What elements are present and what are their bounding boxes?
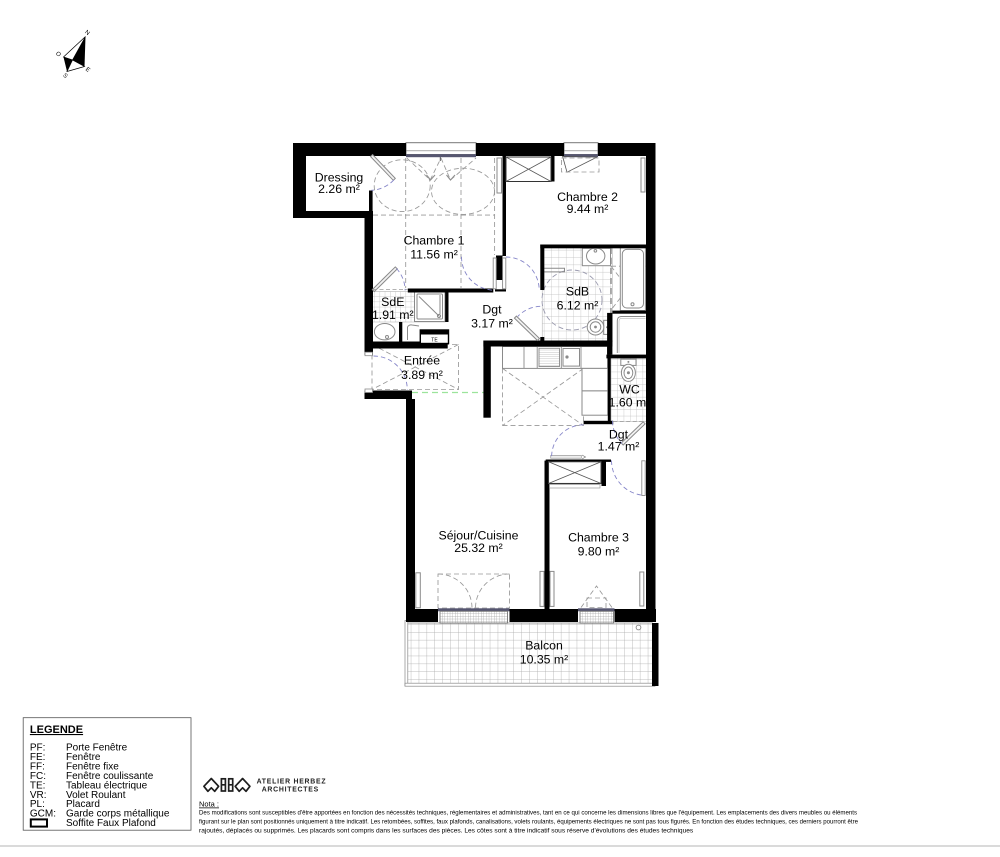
svg-text:3.17 m²: 3.17 m²	[471, 317, 513, 331]
svg-text:1.60 m²: 1.60 m²	[609, 396, 651, 410]
svg-text:E: E	[84, 67, 91, 74]
svg-text:SdE: SdE	[381, 295, 404, 309]
svg-text:11.56 m²: 11.56 m²	[410, 247, 458, 261]
svg-text:Des modifications sont suscept: Des modifications sont susceptibles d'êt…	[199, 810, 858, 817]
svg-text:N: N	[83, 30, 90, 37]
svg-text:Entrée: Entrée	[404, 354, 440, 368]
svg-text:Soffite Faux Plafond: Soffite Faux Plafond	[66, 818, 156, 829]
svg-text:LEGENDE: LEGENDE	[30, 724, 83, 736]
svg-text:6.12 m²: 6.12 m²	[557, 298, 599, 312]
svg-text:Nota :: Nota :	[199, 800, 219, 809]
svg-text:ATELIER HERBEZ: ATELIER HERBEZ	[257, 779, 327, 786]
svg-text:SdB: SdB	[566, 285, 589, 299]
svg-text:O: O	[54, 51, 62, 59]
svg-text:figurant sur le plan sont posi: figurant sur le plan sont positionnés un…	[199, 819, 858, 826]
svg-text:25.32 m²: 25.32 m²	[454, 541, 503, 555]
svg-text:9.44 m²: 9.44 m²	[567, 202, 609, 216]
svg-text:ARCHITECTES: ARCHITECTES	[262, 787, 319, 794]
svg-text:Chambre 3: Chambre 3	[568, 531, 629, 545]
svg-text:9.80 m²: 9.80 m²	[578, 544, 620, 558]
svg-text:WC: WC	[619, 383, 640, 397]
svg-text:3.89 m²: 3.89 m²	[401, 368, 443, 382]
svg-text:1.47 m²: 1.47 m²	[598, 440, 640, 454]
svg-text:GCM:: GCM:	[30, 809, 56, 820]
svg-text:rajoutés, déplacés ou supprimé: rajoutés, déplacés ou supprimés. Les pla…	[199, 828, 694, 835]
svg-text:Chambre 1: Chambre 1	[404, 234, 465, 248]
svg-text:Balcon: Balcon	[525, 638, 563, 652]
svg-text:TE: TE	[431, 338, 438, 344]
svg-text:10.35 m²: 10.35 m²	[520, 652, 569, 666]
svg-text:Dgt: Dgt	[482, 303, 502, 317]
svg-text:2.26 m²: 2.26 m²	[318, 182, 360, 196]
svg-text:1.91 m²: 1.91 m²	[372, 308, 414, 322]
svg-text:S: S	[61, 73, 68, 80]
